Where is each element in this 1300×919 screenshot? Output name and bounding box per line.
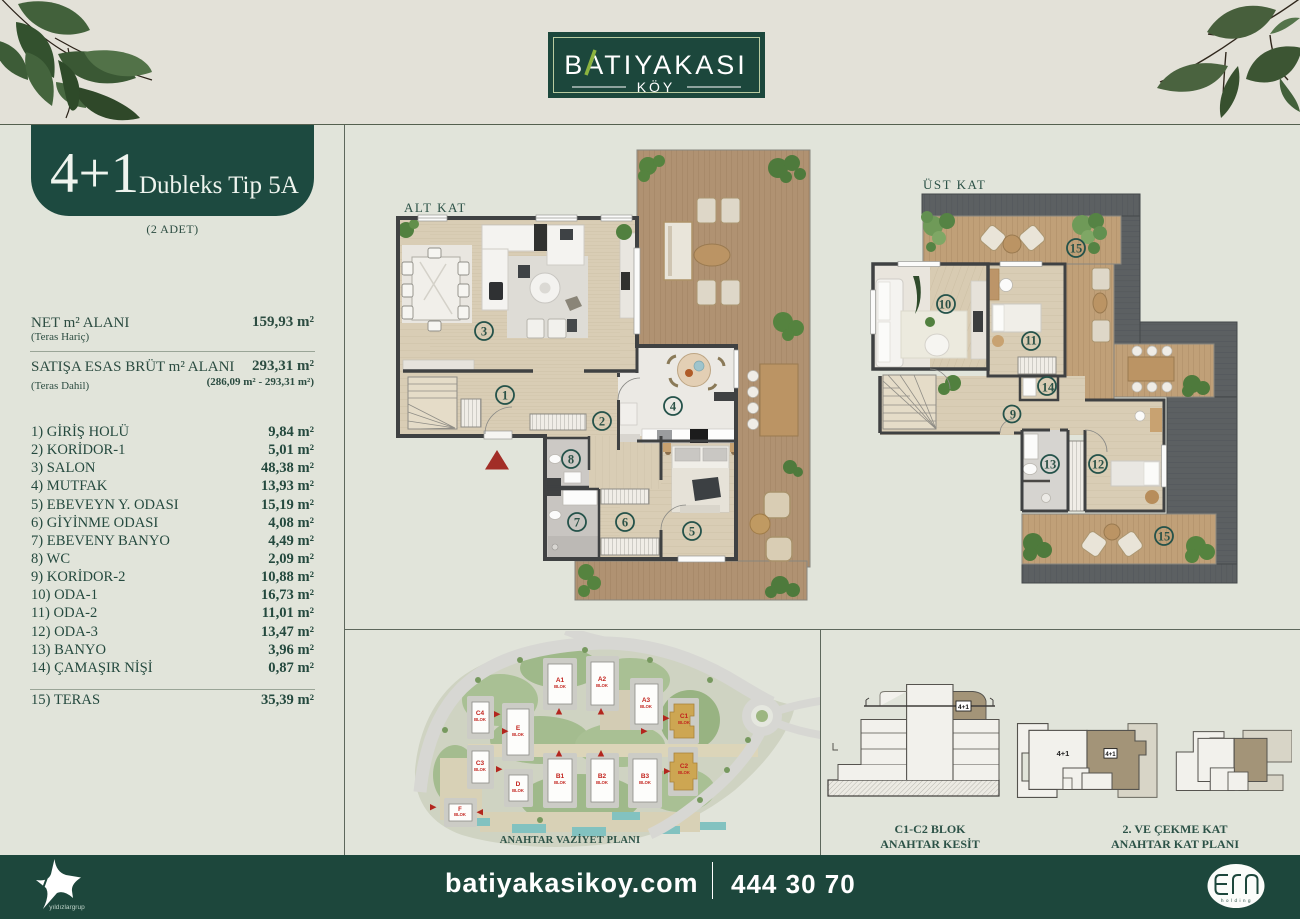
svg-text:10: 10 <box>939 298 952 312</box>
svg-text:9: 9 <box>1010 408 1016 422</box>
svg-text:BLOK: BLOK <box>678 720 690 725</box>
svg-text:7: 7 <box>574 516 580 530</box>
svg-text:BLOK: BLOK <box>554 780 566 785</box>
svg-text:B2: B2 <box>598 773 607 780</box>
svg-text:B3: B3 <box>641 773 650 780</box>
svg-text:A3: A3 <box>642 697 651 704</box>
svg-text:C4: C4 <box>476 710 485 717</box>
svg-text:BLOK: BLOK <box>474 717 486 722</box>
svg-text:2: 2 <box>599 415 605 429</box>
svg-text:1: 1 <box>502 389 508 403</box>
svg-text:KÖY: KÖY <box>637 78 676 95</box>
svg-text:BLOK: BLOK <box>596 683 608 688</box>
svg-text:4: 4 <box>670 400 677 414</box>
svg-text:holding: holding <box>1221 898 1253 903</box>
svg-text:yıldızlargrup: yıldızlargrup <box>49 904 85 911</box>
svg-text:ÜST KAT: ÜST KAT <box>923 177 986 192</box>
svg-text:A1: A1 <box>556 677 565 684</box>
svg-text:BLOK: BLOK <box>639 780 651 785</box>
svg-text:11: 11 <box>1025 334 1037 348</box>
svg-text:8: 8 <box>568 453 574 467</box>
svg-text:4+1: 4+1 <box>1105 752 1116 758</box>
svg-text:BLOK: BLOK <box>474 767 486 772</box>
svg-text:13: 13 <box>1044 458 1057 472</box>
svg-text:BLOK: BLOK <box>454 812 466 817</box>
svg-text:BLOK: BLOK <box>678 770 690 775</box>
svg-text:C3: C3 <box>476 760 485 767</box>
svg-text:C1: C1 <box>680 713 689 720</box>
svg-text:BLOK: BLOK <box>640 704 652 709</box>
svg-text:12: 12 <box>1092 458 1105 472</box>
svg-text:BLOK: BLOK <box>596 780 608 785</box>
svg-text:BLOK: BLOK <box>512 732 524 737</box>
svg-text:4+1: 4+1 <box>1057 749 1070 758</box>
svg-text:B1: B1 <box>556 773 565 780</box>
svg-text:A2: A2 <box>598 676 607 683</box>
svg-text:E: E <box>516 725 521 732</box>
svg-text:6: 6 <box>622 516 628 530</box>
svg-text:4+1: 4+1 <box>958 704 969 711</box>
svg-text:BLOK: BLOK <box>512 788 524 793</box>
svg-text:D: D <box>516 781 521 788</box>
svg-text:15: 15 <box>1070 242 1083 256</box>
svg-text:5: 5 <box>689 525 695 539</box>
svg-text:BLOK: BLOK <box>554 684 566 689</box>
svg-text:3: 3 <box>481 325 487 339</box>
svg-text:14: 14 <box>1042 381 1055 395</box>
svg-text:15: 15 <box>1158 530 1171 544</box>
svg-text:C2: C2 <box>680 763 689 770</box>
svg-text:ALT KAT: ALT KAT <box>404 200 467 215</box>
